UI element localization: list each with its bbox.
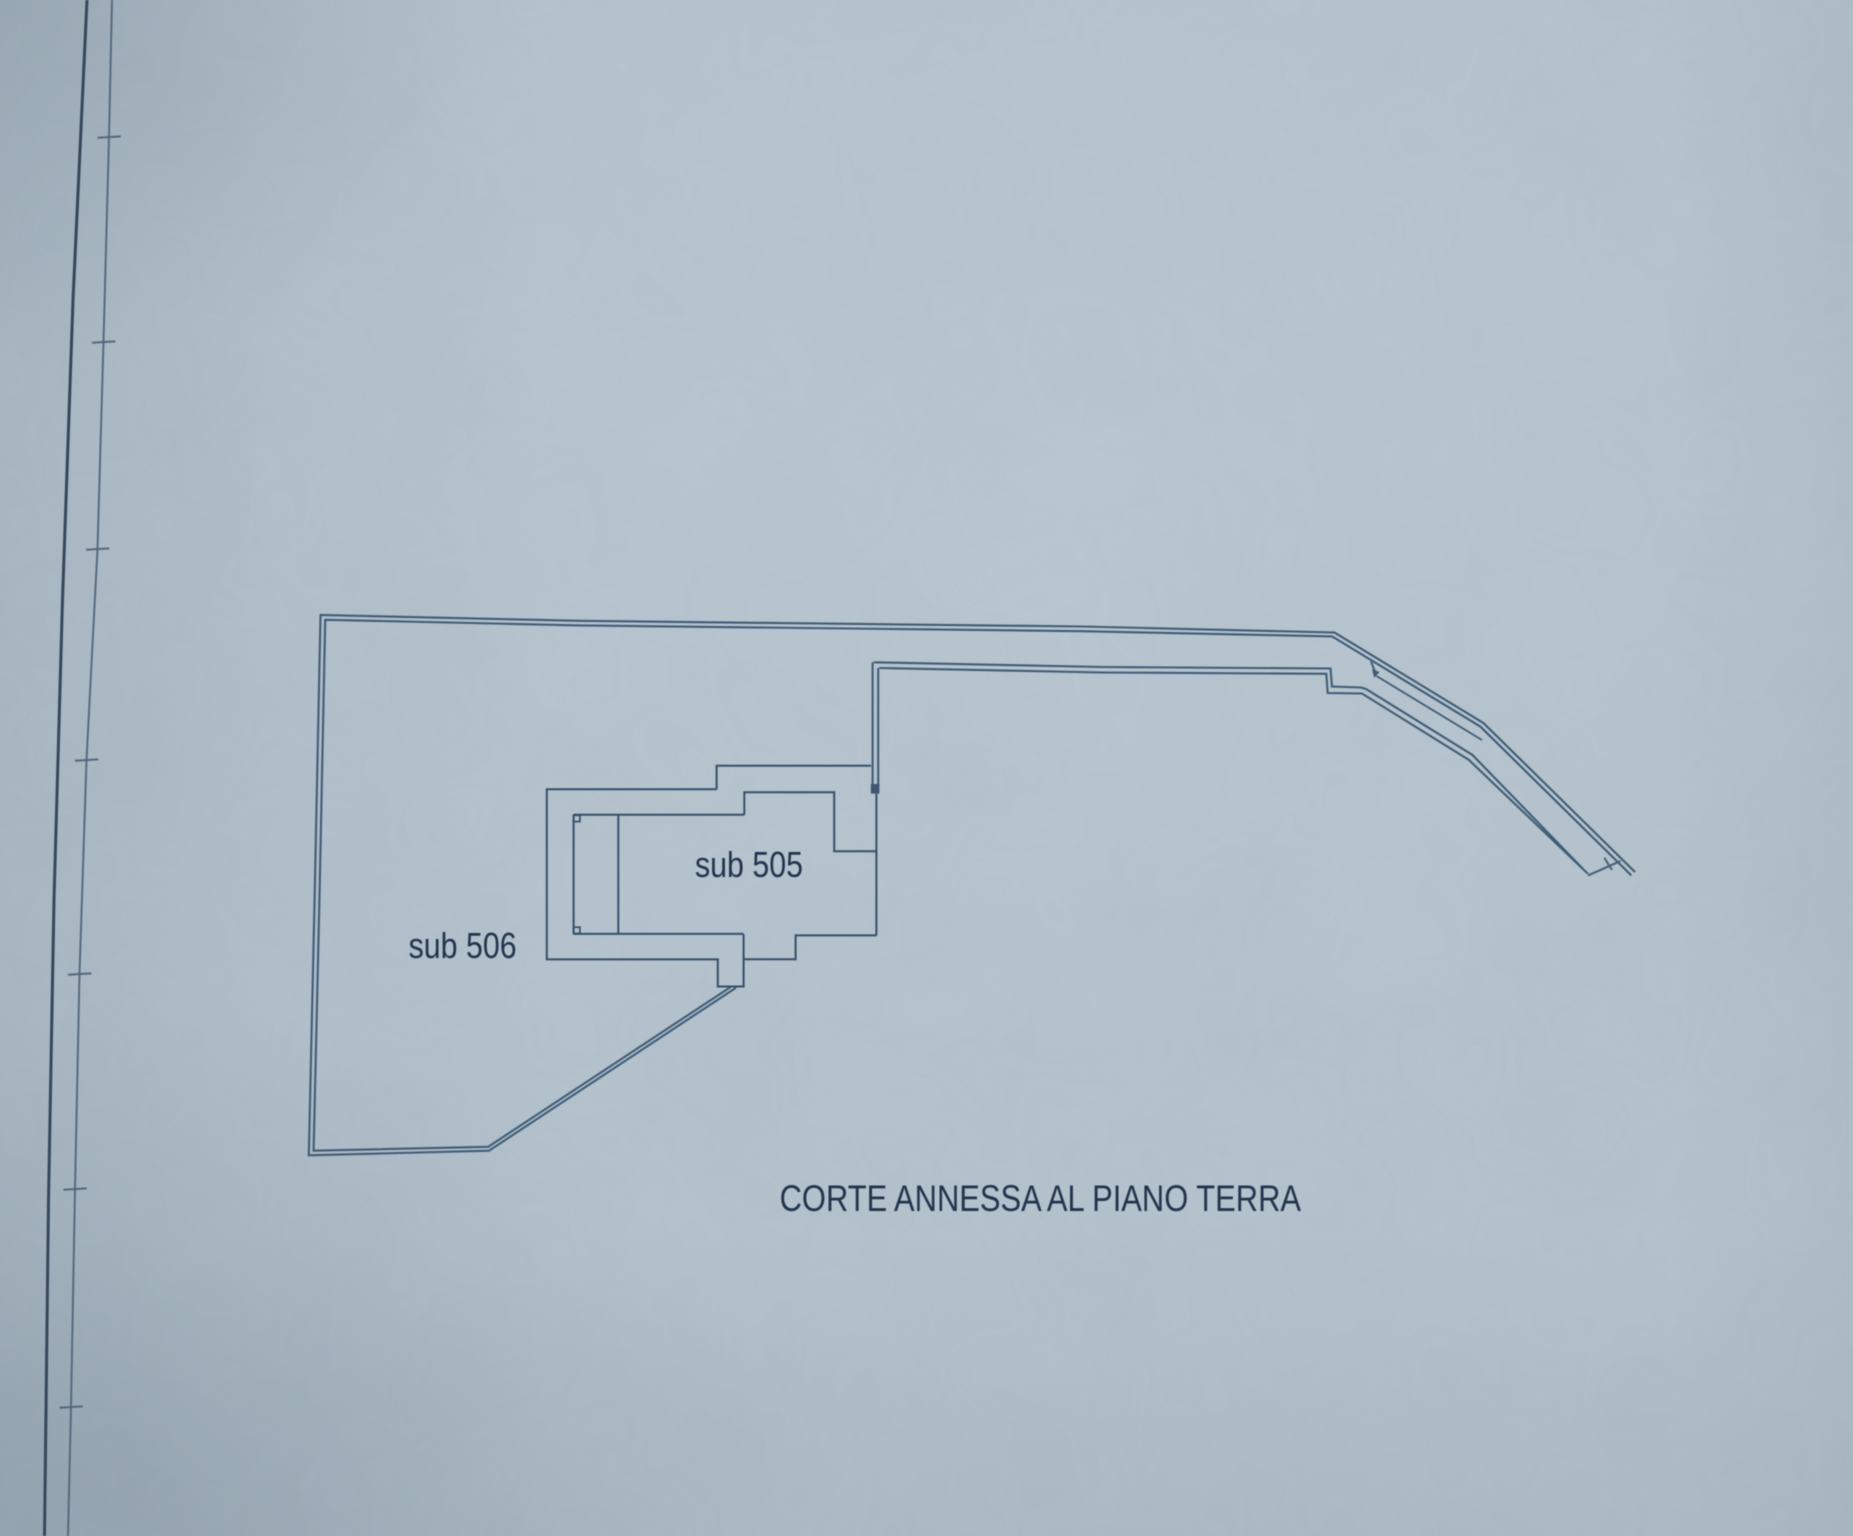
svg-text:sub 505: sub 505 [695, 844, 803, 885]
svg-text:CORTE ANNESSA AL PIANO TERRA: CORTE ANNESSA AL PIANO TERRA [780, 1177, 1301, 1219]
svg-text:sub 506: sub 506 [409, 925, 517, 966]
